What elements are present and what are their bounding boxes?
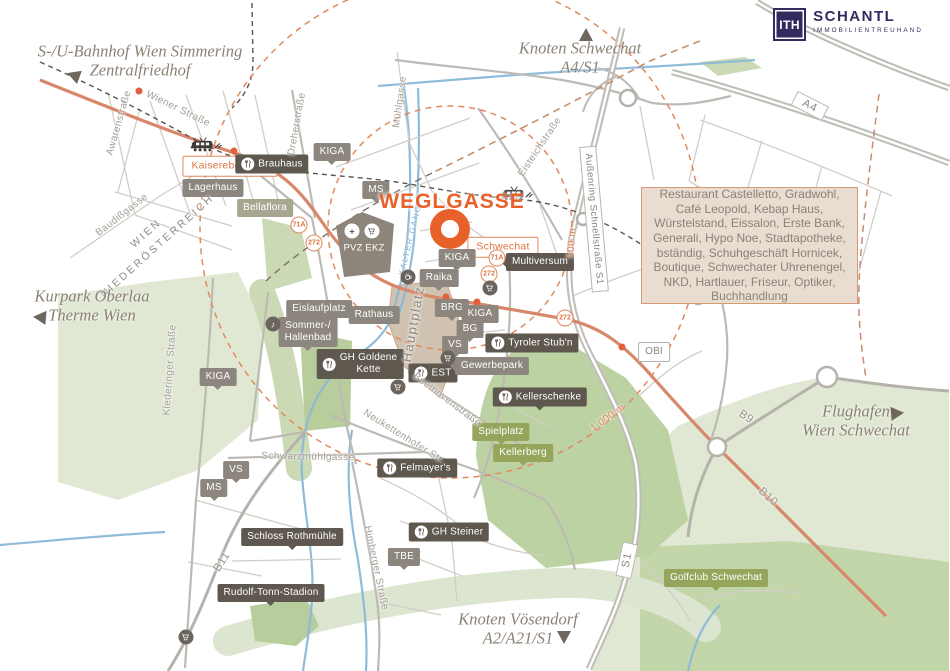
map-tag-kellerschenke: Kellerschenke xyxy=(493,388,587,407)
map-tag-label: Sommer-/ Hallenbad xyxy=(285,320,332,344)
route-badge-272: 272 xyxy=(557,310,574,327)
map-tag-tyroler-stub-n: Tyroler Stub'n xyxy=(485,334,578,353)
map-tag-vs: VS xyxy=(223,461,249,479)
street-label-dreherstra-e: Dreherstraße xyxy=(286,92,308,157)
brand-subtitle: IMMOBILIENTREUHAND xyxy=(813,27,923,34)
map-tag-eislaufplatz: Eislaufplatz xyxy=(286,300,352,318)
cart-icon xyxy=(441,351,456,366)
direction-arrow-icon xyxy=(557,631,571,651)
street-label-1-000-m: 1.000 m xyxy=(589,402,628,434)
map-tag-kiga: KIGA xyxy=(314,143,351,161)
map-tag-label: Raika xyxy=(426,272,453,284)
map-tag-pvz-ekz: PVZ EKZ xyxy=(344,242,385,253)
cart-icon xyxy=(391,380,406,395)
map-tag-label: BG xyxy=(463,323,478,335)
street-label-hauptplatz: Hauptplatz xyxy=(399,285,427,364)
fork-knife-icon xyxy=(491,337,504,350)
street-label-m-hlgasse: Mühlgasse xyxy=(391,76,409,129)
route-badge-71a: 71A xyxy=(291,217,308,234)
street-label-klederinger-stra-e: Klederinger Straße xyxy=(161,324,178,416)
street-label-kalter-gang: KALTER GANG xyxy=(397,204,423,277)
cart-icon xyxy=(483,281,498,296)
map-tag-label: KIGA xyxy=(445,252,470,264)
direction-arrow-icon xyxy=(25,309,46,325)
map-tag-label: VS xyxy=(448,339,462,351)
map-tag-label: Rudolf-Tonn-Stadion xyxy=(224,587,319,599)
map-tag-label: PVZ EKZ xyxy=(344,242,385,253)
map-tag-label: BRG xyxy=(441,302,463,314)
map-tag-label: Multiversum xyxy=(512,256,568,268)
street-label-wien-nieder-sterreich: WIEN NIEDERÖSTERREICH xyxy=(86,178,219,302)
map-label-layer: KaiserebersdorfBrauhausLagerhausBellaflo… xyxy=(0,0,950,671)
route-badge-71a: 71A xyxy=(489,250,506,267)
map-tag-label: VS xyxy=(229,464,243,476)
map-tag-label: Kellerberg xyxy=(499,447,547,459)
map-tag-label: KIGA xyxy=(468,308,493,320)
brand-text-block: SCHANTL IMMOBILIENTREUHAND xyxy=(813,8,923,34)
map-tag-brauhaus: Brauhaus xyxy=(235,155,308,174)
map-tag-label: Rathaus xyxy=(355,309,394,321)
map-tag-label: TBE xyxy=(394,551,414,563)
street-label-500-m: 500 m xyxy=(565,228,578,259)
street-label-a4: A4 xyxy=(791,91,830,121)
direction-arrow-icon xyxy=(890,405,911,421)
map-tag-kellerberg: Kellerberg xyxy=(493,444,553,462)
music-icon: ♪ xyxy=(266,317,281,332)
cup-icon xyxy=(401,270,416,285)
brand-logo: ITH SCHANTL IMMOBILIENTREUHAND xyxy=(773,8,923,41)
map-tag-label: Bellaflora xyxy=(243,202,287,214)
street-label-b9: B9 xyxy=(736,408,755,426)
direction-label-knoten-schwechat: Knoten Schwechat A4/S1 xyxy=(519,39,641,78)
map-tag-label: Spielplatz xyxy=(478,426,523,438)
map-tag-label: Golfclub Schwechat xyxy=(670,572,762,584)
map-tag-label: GH Steiner xyxy=(432,526,483,538)
street-label-himberger-stra-e: Himberger Straße xyxy=(362,525,391,611)
map-tag-schloss-rothm-hle: Schloss Rothmühle xyxy=(241,528,343,546)
map-tag-label: Tyroler Stub'n xyxy=(508,337,572,349)
fork-knife-icon xyxy=(499,391,512,404)
fork-knife-icon xyxy=(415,526,428,539)
street-label-awarenstra-e: Awarenstraße xyxy=(104,89,133,156)
street-label-au-enring-schnellstra-e-s1: Außenring Schnellstraße S1 xyxy=(579,146,609,293)
plus-icon: + xyxy=(345,224,360,239)
map-tag-multiversum: Multiversum xyxy=(506,253,574,271)
fork-knife-icon xyxy=(383,462,396,475)
map-tag-kiga: KIGA xyxy=(439,249,476,267)
cart-icon xyxy=(365,224,380,239)
map-tag-label: Kellerschenke xyxy=(516,391,581,403)
route-badge-272: 272 xyxy=(306,235,323,252)
street-label-eisteichstra-e: Eisteichstraße xyxy=(516,115,564,178)
map-tag-bellaflora: Bellaflora xyxy=(237,199,293,217)
street-label-schwarzm-hlgasse: Schwarzmühlgasse xyxy=(261,451,354,464)
map-tag-ms: MS xyxy=(200,479,227,497)
direction-label-kurpark-oberlaa: Kurpark Oberlaa Therme Wien xyxy=(34,287,149,326)
map-tag-gh-goldene-kette: GH Goldene Kette xyxy=(317,349,404,379)
direction-arrow-icon xyxy=(579,21,593,41)
map-tag-rudolf-tonn-stadion: Rudolf-Tonn-Stadion xyxy=(218,584,325,602)
map-tag-label: Brauhaus xyxy=(258,158,302,170)
map-tag-tbe: TBE xyxy=(388,548,420,566)
location-marker xyxy=(430,209,470,249)
map-tag-label: Gewerbepark xyxy=(461,360,523,372)
street-label-b10: B10 xyxy=(756,485,780,508)
street-label-b11: B11 xyxy=(211,550,232,574)
street-label-s1: S1 xyxy=(615,541,638,579)
amenities-info-box: Restaurant Castelletto, Gradwohl, Café L… xyxy=(641,187,858,304)
map-tag-felmayer-s: Felmayer's xyxy=(377,459,457,478)
map-tag-spielplatz: Spielplatz xyxy=(472,423,529,441)
map-tag-label: Felmayer's xyxy=(400,462,451,474)
map-tag-label: Schloss Rothmühle xyxy=(247,531,337,543)
map-tag-gewerbepark: Gewerbepark xyxy=(455,357,529,375)
fork-knife-icon xyxy=(241,158,254,171)
ith-logo-icon: ITH xyxy=(773,8,806,41)
map-tag-obi: OBI xyxy=(638,342,670,362)
map-tag-sommer-hallenbad: Sommer-/ Hallenbad xyxy=(279,317,338,347)
map-tag-label: OBI xyxy=(645,346,663,358)
map-tag-label: KIGA xyxy=(206,371,231,383)
cart-icon xyxy=(179,630,194,645)
map-tag-kiga: KIGA xyxy=(200,368,237,386)
fork-knife-icon xyxy=(323,358,336,371)
street-label-wiener-stra-e: Wiener Straße xyxy=(144,89,211,129)
map-tag-label: MS xyxy=(206,482,221,494)
map-tag-gh-steiner: GH Steiner xyxy=(409,523,489,542)
location-map: KaiserebersdorfBrauhausLagerhausBellaflo… xyxy=(0,0,950,671)
map-tag-label: KIGA xyxy=(320,146,345,158)
map-tag-golfclub-schwechat: Golfclub Schwechat xyxy=(664,569,768,587)
map-tag-raika: Raika xyxy=(420,269,459,287)
map-tag-label: GH Goldene Kette xyxy=(340,352,398,376)
amenities-text: Restaurant Castelletto, Gradwohl, Café L… xyxy=(651,187,848,304)
map-tag-label: Eislaufplatz xyxy=(292,303,346,315)
brand-name: SCHANTL xyxy=(813,8,923,25)
map-tag-rathaus: Rathaus xyxy=(349,306,400,324)
